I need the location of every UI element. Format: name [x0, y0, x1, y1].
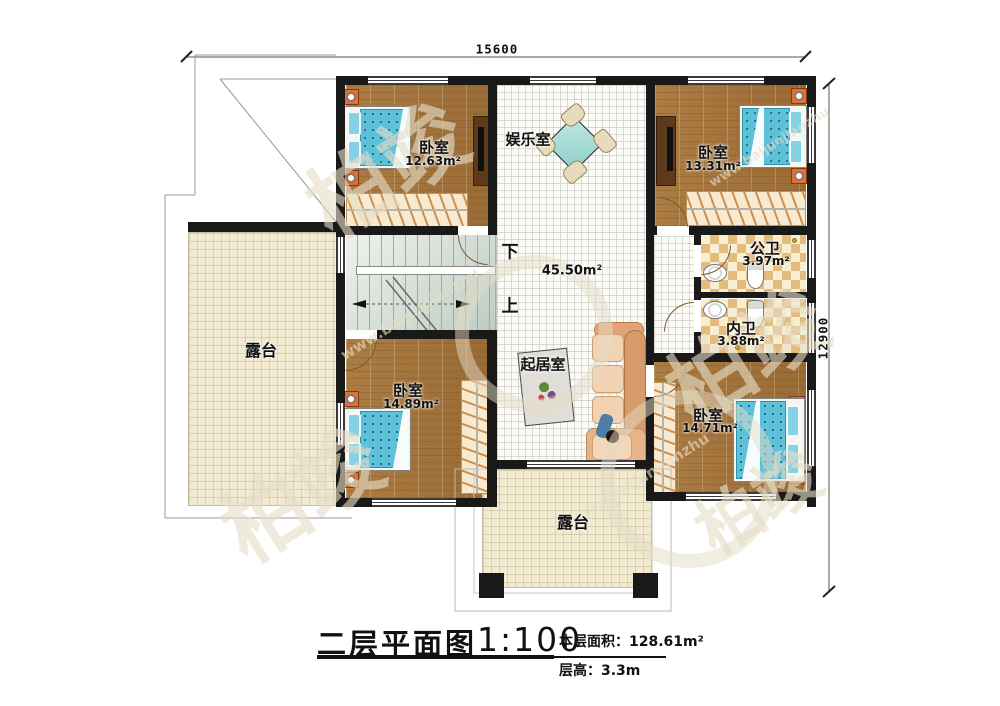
wall [488, 76, 497, 235]
dimension-width: 15600 [476, 42, 519, 57]
plan-linework [0, 0, 1000, 706]
window [530, 76, 596, 85]
room-area-public-bathroom: 3.97m² [742, 254, 789, 268]
room-label-terrace-bottom: 露台 [557, 509, 589, 533]
stairs-up-label: 上 [502, 292, 519, 317]
room-area-bedroom-bottom-right: 14.71m² [682, 421, 738, 435]
room-area-bedroom-bottom-left: 14.89m² [383, 397, 439, 411]
info-divider [554, 656, 666, 658]
floor-height-info: 层高：3.3m [559, 660, 640, 680]
room-area-private-bathroom: 3.88m² [717, 334, 764, 348]
room-area-bedroom-top-right: 13.31m² [685, 159, 741, 173]
title-underline [317, 655, 554, 659]
terrace-column [633, 573, 658, 598]
room-area-living: 45.50m² [542, 264, 602, 279]
window [368, 76, 448, 85]
window [688, 76, 764, 85]
floor-area-label: 本层面积： [559, 634, 629, 650]
floor-plan-canvas: 柏竣 柏竣 柏竣 柏竣 www.baijunjianzhu www.baijun… [0, 0, 1000, 706]
floor-area-value: 128.61m² [629, 634, 704, 650]
wall [646, 76, 655, 235]
terrace-column [479, 573, 504, 598]
window [686, 492, 776, 501]
window [336, 237, 345, 273]
wall [694, 292, 816, 298]
floor-height-label: 层高： [559, 663, 601, 679]
window [372, 498, 456, 507]
wall [188, 222, 338, 232]
window [336, 403, 345, 445]
floor-area-info: 本层面积：128.61m² [559, 631, 704, 651]
room-label-entertainment: 娱乐室 [505, 129, 550, 150]
window [807, 107, 816, 163]
window [807, 240, 816, 278]
room-label-living: 起居室 [520, 354, 565, 375]
dimension-height: 12900 [816, 317, 831, 360]
room-label-terrace-left: 露台 [245, 337, 277, 361]
terrace-door-sill [527, 460, 635, 469]
floor-height-value: 3.3m [601, 663, 640, 679]
wall [646, 353, 816, 362]
room-area-bedroom-top-left: 12.63m² [405, 154, 461, 168]
stairs-down-label: 下 [502, 238, 519, 263]
wall [487, 330, 497, 507]
window [807, 390, 816, 466]
